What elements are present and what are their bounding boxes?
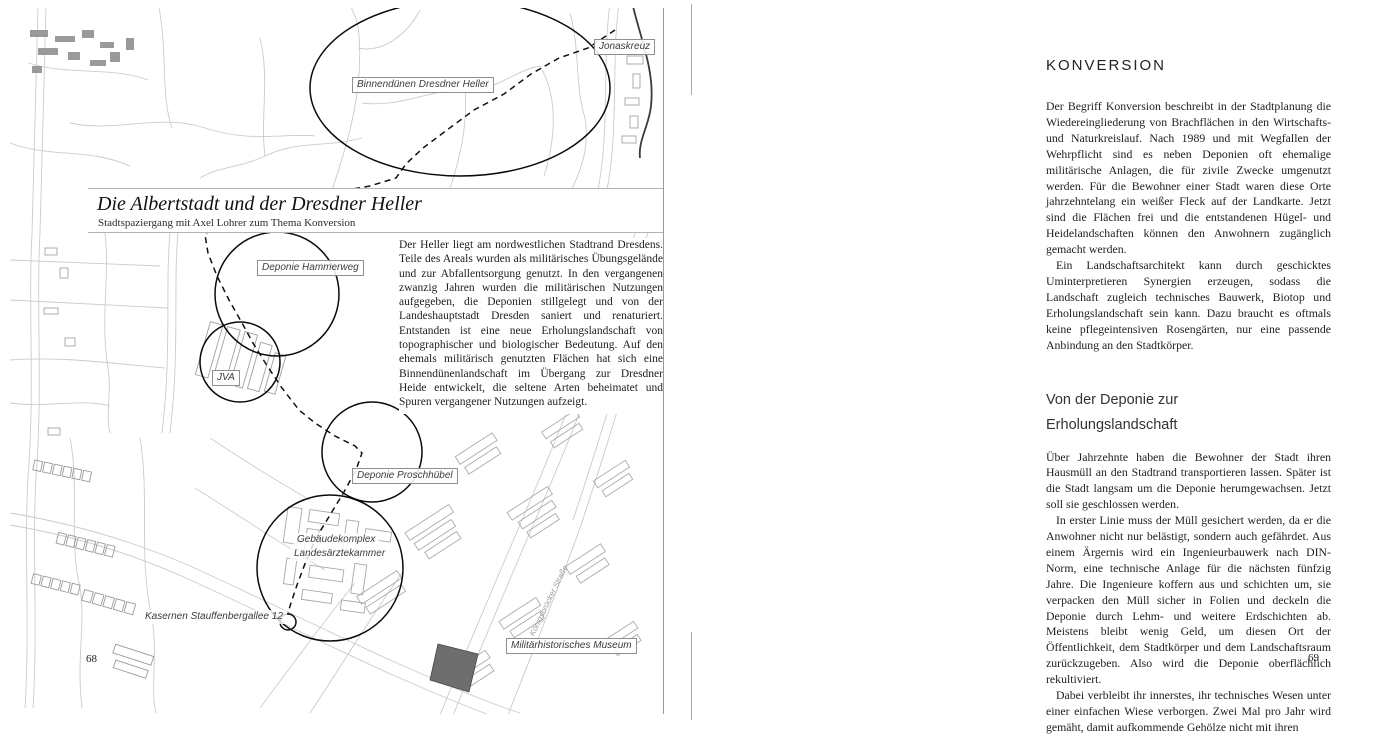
- section-heading-konversion: KONVERSION: [1046, 57, 1331, 74]
- map-label-deponie-hammerweg: Deponie Hammerweg: [257, 260, 364, 276]
- subheading-line1: Von der Deponie zur: [1046, 388, 1331, 413]
- map-label-deponie-proschhuebel: Deponie Proschhübel: [352, 468, 458, 484]
- article-title-block: Die Albertstadt und der Dresdner Heller …: [88, 188, 663, 233]
- map-circle-proschhuebel: [322, 402, 422, 502]
- paragraph: Über Jahrzehnte haben die Bewohner der S…: [1046, 450, 1331, 514]
- gutter-mark-top: [691, 4, 692, 95]
- building-cluster-topleft: [30, 30, 134, 73]
- map-label-museum: Militärhistorisches Museum: [506, 638, 637, 654]
- subheading-line2: Erholungslandschaft: [1046, 413, 1331, 438]
- intro-paragraph: Der Heller liegt am nordwestlichen Stadt…: [399, 238, 663, 410]
- map-label-kasernen: Kasernen Stauffenbergallee 12: [141, 610, 287, 624]
- right-page: KONVERSION Der Begriff Konversion beschr…: [1046, 57, 1331, 736]
- section-subheading: Von der Deponie zur Erholungslandschaft: [1046, 388, 1331, 438]
- article-subtitle: Stadtspaziergang mit Axel Lohrer zum The…: [98, 217, 663, 230]
- map-circle-hammerweg: [215, 232, 339, 356]
- article-title: Die Albertstadt und der Dresdner Heller: [97, 192, 663, 216]
- paragraph: Der Begriff Konversion beschreibt in der…: [1046, 99, 1331, 258]
- barracks-rows: [31, 460, 154, 678]
- paragraph: Dabei verbleibt ihr innerstes, ihr techn…: [1046, 688, 1331, 736]
- map-label-jva: JVA: [212, 370, 240, 386]
- rail-line: [632, 8, 652, 158]
- paragraph: Ein Landschaftsarchitekt kann durch gesc…: [1046, 258, 1331, 353]
- page-number-left: 68: [86, 653, 97, 665]
- intro-text-block: Der Heller liegt am nordwestlichen Stadt…: [399, 238, 663, 414]
- map-label-landesaerztekammer: Landesärztekammer: [290, 547, 389, 561]
- map-label-binnenduenen: Binnendünen Dresdner Heller: [352, 77, 494, 93]
- gutter-mark-bottom: [691, 632, 692, 720]
- museum-building: [430, 644, 478, 692]
- map-label-jonaskreuz: Jonaskreuz: [594, 39, 655, 55]
- page-number-right: 69: [1046, 652, 1319, 664]
- jva-buildings: [195, 322, 289, 397]
- map-label-gebaeudekomplex: Gebäudekomplex: [293, 533, 379, 547]
